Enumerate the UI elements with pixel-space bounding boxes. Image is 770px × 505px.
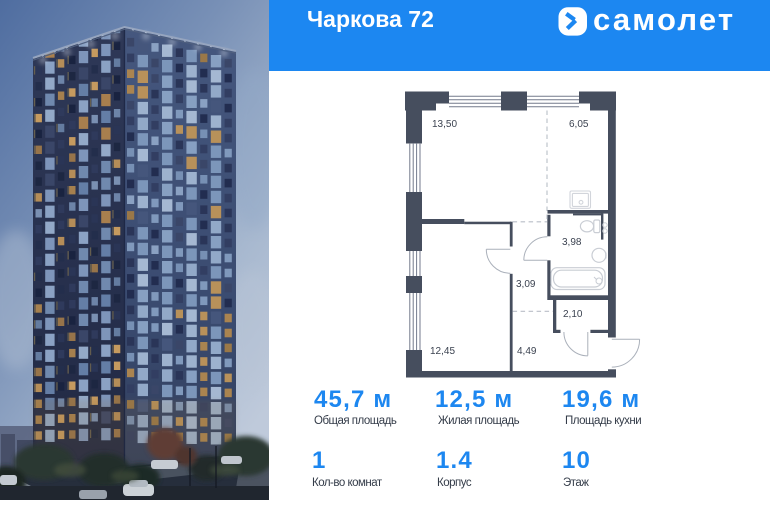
svg-text:12,45: 12,45 (430, 346, 455, 357)
svg-text:2,10: 2,10 (563, 309, 583, 320)
svg-text:4,49: 4,49 (517, 346, 537, 357)
svg-text:13,50: 13,50 (432, 119, 457, 130)
svg-text:3,98: 3,98 (562, 237, 582, 248)
svg-text:6,05: 6,05 (569, 119, 589, 130)
svg-text:3,09: 3,09 (516, 279, 536, 290)
